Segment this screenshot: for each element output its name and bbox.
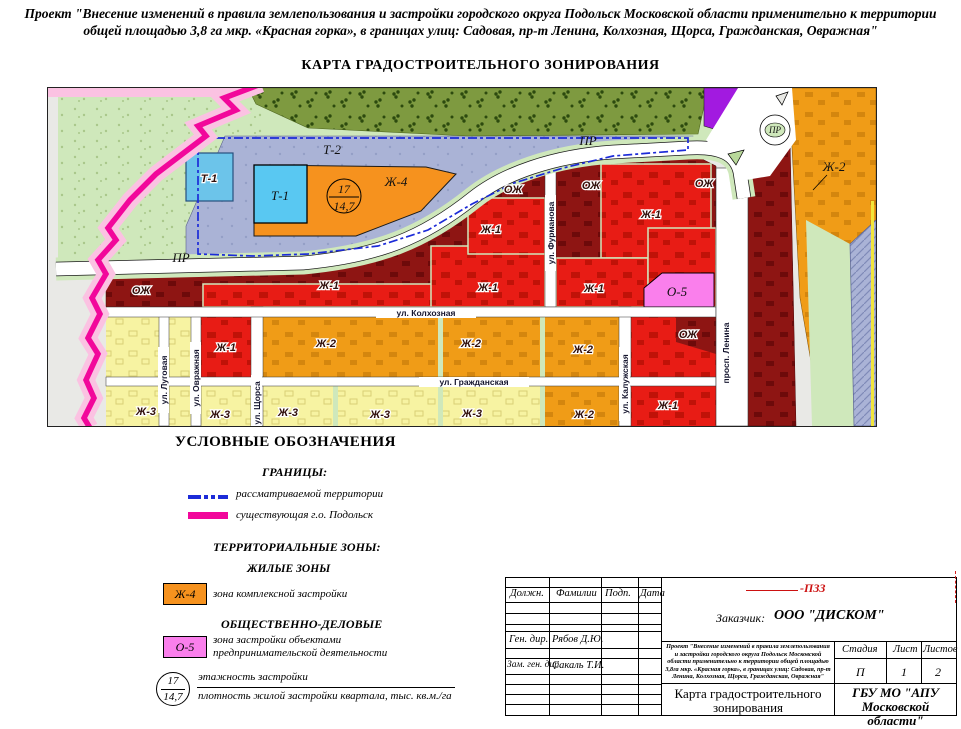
label-o5: О-5 [667, 284, 688, 299]
stamp-hline [506, 694, 661, 695]
map-edge-yellow-line [871, 201, 874, 426]
label-zh1: Ж-1 [657, 400, 678, 412]
stamp-org-line1: ГБУ МО "АПУ [836, 686, 955, 700]
stamp-hline [661, 641, 956, 642]
stamp-code: -ПЗЗ [800, 581, 826, 596]
stamp-hline [506, 674, 661, 675]
legend-o5-label-line1: зона застройки объектами [213, 634, 341, 646]
zoning-map-svg: 17 14,7 Т-1 Т-2 Т-1 Ж-4 Ж-2 О-5 ПР ПР ПР… [48, 88, 876, 426]
legend-business-heading: ОБЩЕСТВЕННО-ДЕЛОВЫЕ [221, 617, 382, 632]
label-zh1: Ж-1 [640, 209, 661, 221]
label-zh3: Ж-3 [277, 407, 298, 419]
stamp-hline [834, 658, 956, 659]
legend-swatch-zh4: Ж-4 [163, 583, 207, 605]
stamp-vline [886, 641, 887, 683]
label-ozh: ОЖ [504, 184, 523, 196]
stamp-sheets-header: Листов [923, 644, 957, 655]
stamp-hline [506, 613, 661, 614]
label-zh2: Ж-2 [460, 338, 481, 350]
zone-zh1-central-low [431, 246, 545, 307]
legend-city-border-label: существующая г.о. Подольск [236, 509, 373, 521]
label-zh1: Ж-1 [318, 280, 339, 292]
density-value: 14,7 [334, 199, 356, 213]
stamp-col-signature: Подп. [605, 588, 631, 599]
legend-borders-heading: ГРАНИЦЫ: [262, 465, 327, 480]
legend-fraction-bar [197, 687, 455, 688]
label-zh3: Ж-3 [461, 408, 482, 420]
label-ozh: ОЖ [132, 285, 151, 297]
label-ozh: ОЖ [679, 329, 698, 341]
stamp-name-1: Рябов Д.Ю. [552, 634, 603, 645]
street-label-lenina: просп. Ленина [720, 315, 731, 391]
label-zh3: Ж-3 [135, 406, 156, 418]
density-floors: 17 [338, 182, 351, 196]
stamp-project-description: Проект "Внесение изменений в правила зем… [664, 643, 832, 682]
label-t1-small: Т-1 [201, 173, 218, 185]
stamp-stage-header: Стадия [842, 644, 878, 655]
svg-text:ул. Гражданская: ул. Гражданская [439, 377, 508, 387]
stamp-vline [921, 641, 922, 683]
street-label-grazhdanskaya: ул. Гражданская [419, 377, 529, 387]
stamp-customer-name: ООО "ДИСКОМ" [774, 608, 885, 624]
zone-zh3-block [263, 385, 333, 426]
label-pr-north: ПР [578, 133, 596, 148]
project-title-line2: общей площадью 3,8 га мкр. «Красная горк… [0, 22, 961, 39]
legend-title: УСЛОВНЫЕ ОБОЗНАЧЕНИЯ [175, 434, 396, 451]
legend-floors-label: этажность застройки [198, 671, 308, 683]
legend-density-circle: 17 14,7 [156, 672, 190, 706]
stamp-red-dash-mark [955, 571, 956, 603]
svg-text:ул. Овражная: ул. Овражная [191, 349, 201, 406]
zone-zh3-block [169, 316, 191, 377]
zone-zh3-block [106, 316, 159, 377]
legend-density-floors: 17 [161, 674, 185, 690]
label-t1-large: Т-1 [271, 188, 289, 203]
label-pr-west: ПР [171, 250, 189, 265]
stamp-hline [506, 658, 661, 659]
label-zh3: Ж-3 [209, 409, 230, 421]
label-zh2-northeast: Ж-2 [822, 159, 846, 174]
stamp-col-date: Дата [640, 588, 665, 599]
zone-zh3-block [169, 385, 191, 426]
zone-zh3-block [443, 385, 540, 426]
label-ozh: ОЖ [582, 180, 601, 192]
street-label-shchorsa: ул. Щорса [251, 375, 262, 426]
svg-text:ул. Фурманова: ул. Фурманова [546, 201, 556, 264]
label-zh2: Ж-2 [572, 344, 593, 356]
legend-residential-heading: ЖИЛЫЕ ЗОНЫ [247, 563, 330, 575]
street-label-furmanova: ул. Фурманова [545, 195, 556, 271]
street-label-kolkhoznaya: ул. Колхозная [376, 308, 476, 318]
label-zh4: Ж-4 [384, 174, 408, 189]
map-title: КАРТА ГРАДОСТРОИТЕЛЬНОГО ЗОНИРОВАНИЯ [0, 58, 961, 74]
legend-o5-label-line2: предпринимательской деятельности [213, 647, 387, 659]
stamp-org-line2: Московской области" [836, 700, 955, 728]
stamp-name-2: Сакаль Т.И. [552, 660, 604, 671]
project-title-line1: Проект "Внесение изменений в правила зем… [0, 5, 961, 22]
legend-density-value: 14,7 [157, 690, 189, 704]
stamp-hline [506, 602, 661, 603]
label-zh1: Ж-1 [215, 342, 236, 354]
stamp-stage-value: П [856, 665, 865, 680]
label-zh1: Ж-1 [480, 224, 501, 236]
stamp-role-1: Ген. дир. [509, 634, 548, 645]
title-block: Должн. Фамилии Подп. Дата Ген. дир. Рябо… [505, 577, 957, 716]
zoning-map-document: { "header": { "line1": "Проект \"Внесени… [0, 0, 961, 729]
zone-zh2-block [443, 316, 540, 377]
label-zh2: Ж-2 [573, 409, 594, 421]
label-zh1: Ж-1 [477, 282, 498, 294]
legend-zones-heading: ТЕРРИТОРИАЛЬНЫЕ ЗОНЫ: [213, 540, 381, 555]
label-zh2: Ж-2 [315, 338, 336, 350]
stamp-hline [661, 683, 956, 684]
legend-territory-border-label: рассматриваемой территории [236, 488, 383, 500]
legend-density-label: плотность жилой застройки квартала, тыс.… [198, 690, 452, 702]
legend-swatch-o5: О-5 [163, 636, 207, 658]
zoning-map: 17 14,7 Т-1 Т-2 Т-1 Ж-4 Ж-2 О-5 ПР ПР ПР… [47, 87, 877, 427]
stamp-code-underline [746, 590, 798, 591]
street-label-ovrazhnaya: ул. Овражная [190, 342, 201, 414]
stamp-vline [834, 641, 835, 715]
stamp-sheets-value: 2 [935, 665, 941, 680]
street-label-lugovaya: ул. Луговая [158, 347, 169, 413]
svg-text:ул. Луговая: ул. Луговая [159, 356, 169, 405]
green-east-strip [806, 220, 854, 426]
svg-text:ул. Щорса: ул. Щорса [252, 381, 262, 425]
stamp-hline [506, 704, 661, 705]
stamp-col-names: Фамилии [556, 588, 597, 599]
label-ozh: ОЖ [695, 178, 714, 190]
legend-swatch-city-border [188, 512, 228, 519]
label-pr-roundabout: ПР [768, 125, 781, 135]
stamp-hline [506, 624, 661, 625]
stamp-hline [506, 684, 661, 685]
zone-ozh-lenina-strip [746, 138, 796, 426]
zone-zh2-block [263, 316, 438, 377]
stamp-col-position: Должн. [510, 588, 544, 599]
label-t2: Т-2 [323, 142, 342, 157]
legend-zh4-label: зона комплексной застройки [213, 588, 347, 600]
svg-text:ул. Калужская: ул. Калужская [620, 354, 630, 413]
street-label-kaluzhskaya: ул. Калужская [619, 347, 630, 421]
stamp-sheet-value: 1 [901, 665, 907, 680]
stamp-org: ГБУ МО "АПУ Московской области" [836, 686, 955, 728]
stamp-hline [506, 631, 661, 632]
project-title: Проект "Внесение изменений в правила зем… [0, 5, 961, 39]
label-zh3: Ж-3 [369, 409, 390, 421]
stamp-sheet-header: Лист [893, 644, 918, 655]
stamp-customer-label: Заказчик: [716, 611, 765, 626]
label-zh1: Ж-1 [583, 283, 604, 295]
stamp-hline [506, 648, 661, 649]
svg-text:ул. Колхозная: ул. Колхозная [397, 308, 456, 318]
stamp-doc-title: Карта градостроительного зонирования [663, 687, 833, 715]
legend-swatch-territory-border [188, 495, 228, 499]
svg-text:просп. Ленина: просп. Ленина [721, 322, 731, 383]
